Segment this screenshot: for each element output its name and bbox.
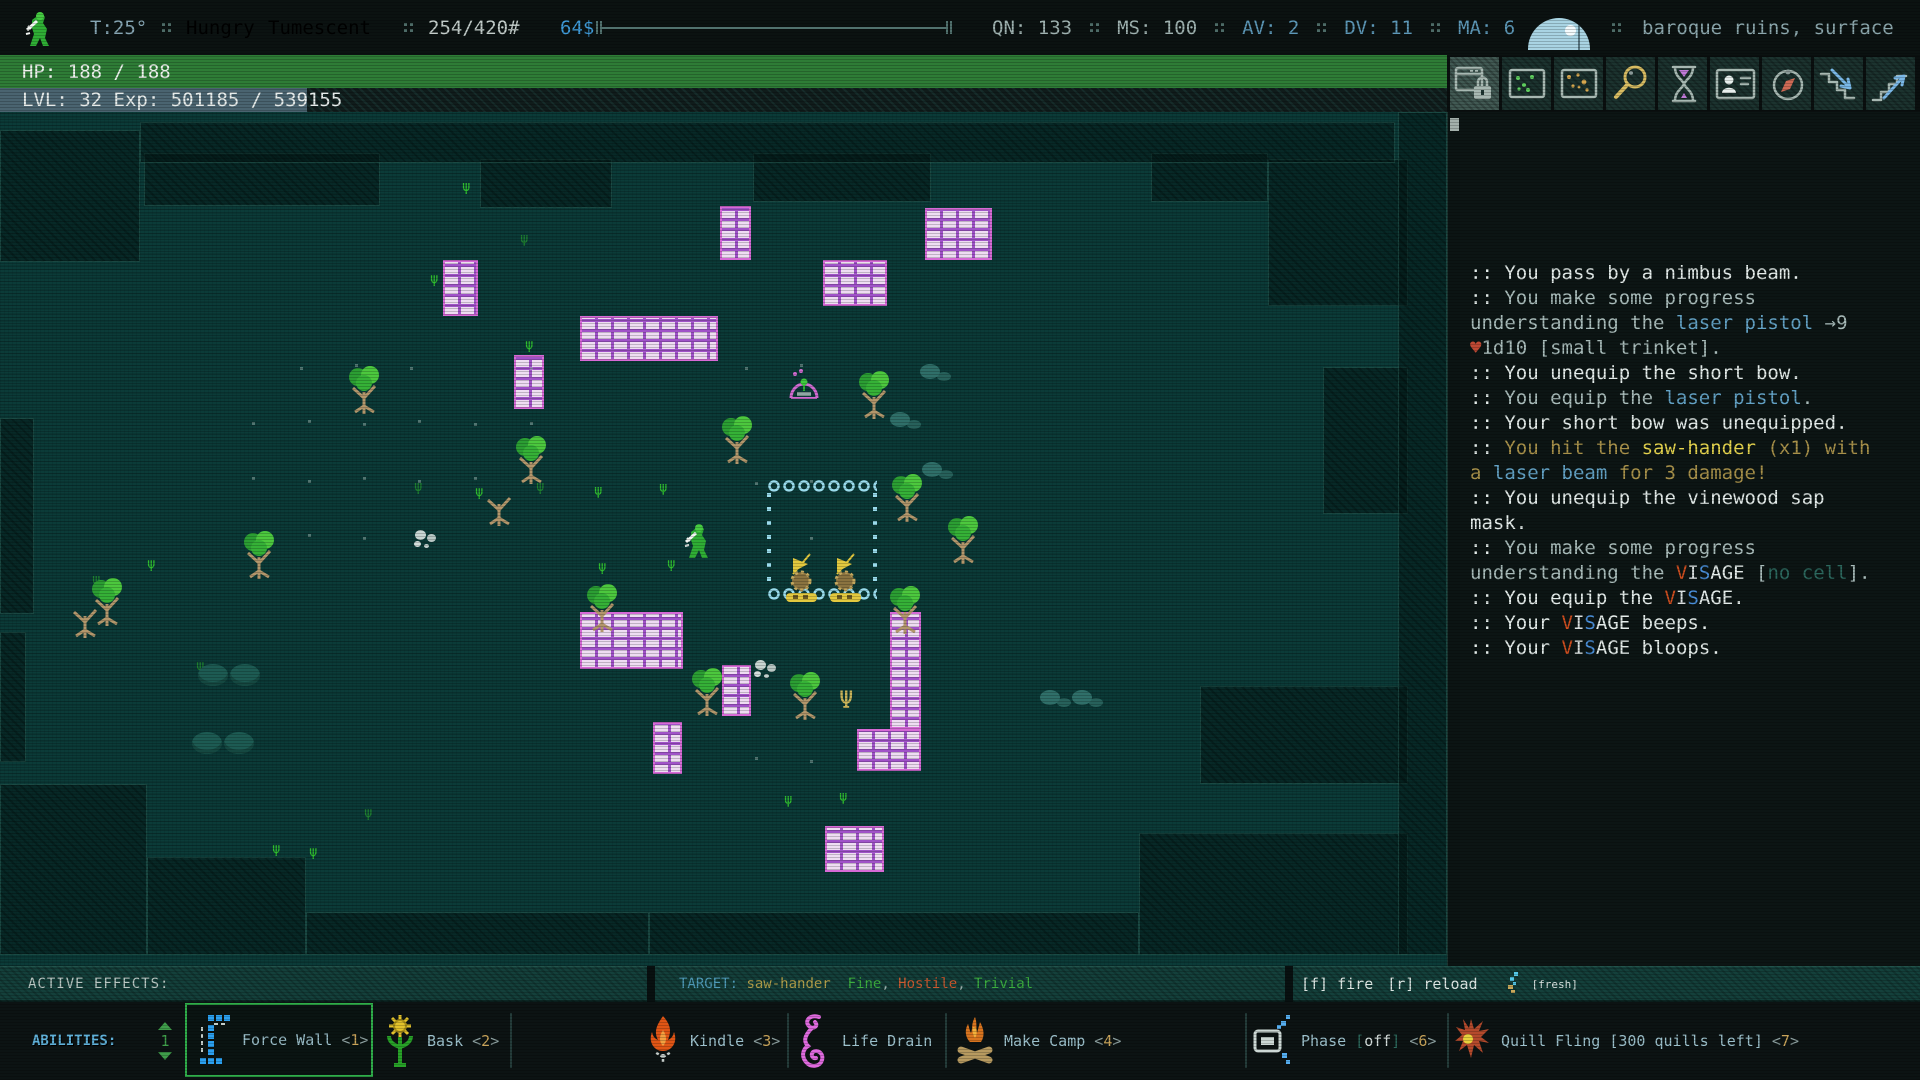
tree: [583, 580, 621, 634]
smoke-puff: [415, 530, 426, 540]
grass-tuft: ψ: [525, 338, 533, 352]
log-line: :: You unequip the vinewood sap: [1470, 486, 1914, 511]
scrollbar-thumb[interactable]: [1450, 118, 1459, 131]
top-status-bar: T:25° Hungry Tumescent 254/420# 64$ QN: …: [0, 0, 1920, 55]
phase-icon: [1252, 1013, 1292, 1069]
ability-separator: [1245, 1013, 1247, 1068]
log-line: :: You make some progress: [1470, 286, 1914, 311]
force-wall-icon: [197, 1013, 233, 1067]
ruin-room: [1139, 833, 1408, 955]
marble-wall: [514, 355, 544, 409]
fire-hint: [f] fire: [1301, 975, 1373, 993]
ability-label: Quill Fling: [1501, 1032, 1600, 1050]
log-scrollbar: [1447, 112, 1460, 966]
life-drain-icon: [797, 1013, 833, 1069]
ability-separator: [510, 1013, 512, 1068]
ability-state: [off]: [1355, 1032, 1400, 1050]
separator-dots: [1215, 23, 1224, 32]
log-line: :: You hit the saw-hander (x1) with: [1470, 436, 1914, 461]
abilities-pager: 1: [158, 1002, 172, 1080]
weight-bar: [596, 21, 952, 34]
target-segment: ,: [957, 976, 974, 992]
boulder: [192, 732, 222, 754]
target-segment: TARGET:: [679, 976, 746, 992]
marble-wall: [925, 208, 992, 260]
log-line: :: Your VISAGE beeps.: [1470, 611, 1914, 636]
quill-fling-icon: [1452, 1013, 1492, 1069]
ruin-room: [0, 418, 34, 614]
boulder: [230, 664, 260, 686]
stairs-down-button[interactable]: [1814, 57, 1863, 110]
ability-separator: [1447, 1013, 1449, 1068]
saw-hander-creature[interactable]: [783, 552, 829, 606]
ruin-room: [0, 632, 26, 762]
tree: [688, 664, 726, 718]
marble-wall: [823, 260, 887, 306]
nimbus-creature[interactable]: [786, 368, 822, 412]
grass-tuft: ψ: [594, 484, 602, 498]
log-line: :: You pass by a nimbus beam.: [1470, 261, 1914, 286]
target-segment: saw-hander: [746, 976, 839, 992]
world-map-button[interactable]: [1554, 57, 1603, 110]
grass-tuft: ψ: [598, 560, 606, 574]
log-line: :: You unequip the short bow.: [1470, 361, 1914, 386]
ability-make-camp[interactable]: Make Camp<4>: [955, 1002, 1121, 1080]
separator-dots: [1431, 23, 1440, 32]
ability-hotkey: <7>: [1772, 1032, 1799, 1050]
local-map-button[interactable]: [1502, 57, 1551, 110]
log-line: understanding the laser pistol →9: [1470, 311, 1914, 336]
stat-qn: QN: 133: [992, 17, 1072, 39]
gas-cloud: [1040, 690, 1060, 705]
ruin-room: [649, 912, 1139, 955]
message-log: :: You pass by a nimbus beam.:: You make…: [1460, 112, 1920, 966]
gas-cloud: [1072, 690, 1092, 705]
game-screen: T:25° Hungry Tumescent 254/420# 64$ QN: …: [0, 0, 1920, 1080]
boulder: [198, 664, 228, 686]
ability-hotkey: <2>: [472, 1032, 499, 1050]
day-night-indicator: [1528, 14, 1590, 54]
ruin-room: [1398, 112, 1447, 955]
tree: [888, 470, 926, 524]
level-bar: LVL: 32 Exp: 501185 / 539155: [0, 88, 1447, 112]
ability-label: Phase: [1301, 1032, 1346, 1050]
log-line: :: You equip the VISAGE.: [1470, 586, 1914, 611]
marble-wall: [443, 260, 478, 316]
rest-button[interactable]: [1658, 57, 1707, 110]
money: 64$: [560, 0, 594, 55]
grass-tuft: ψ: [784, 793, 792, 807]
ability-label: Life Drain: [842, 1032, 932, 1050]
separator-dots: [400, 0, 417, 55]
grass-tuft: ψ: [309, 845, 317, 859]
smoke-puff: [755, 660, 766, 670]
ability-extra: [300 quills left]: [1609, 1032, 1763, 1050]
dry-plant: Ψ: [839, 688, 853, 712]
saw-hander-creature[interactable]: [827, 552, 873, 606]
ability-bask[interactable]: Bask<2>: [382, 1002, 499, 1080]
zoom-view-button[interactable]: [1606, 57, 1655, 110]
marble-wall: [825, 826, 884, 872]
stats-group: QN: 133MS: 100AV: 2DV: 11MA: 6: [992, 0, 1515, 55]
ability-force-wall[interactable]: Force Wall<1>: [185, 1003, 373, 1077]
log-line: ♥1d10 [small trinket].: [1470, 336, 1914, 361]
ruin-room: [1323, 367, 1408, 514]
ruin-room: [0, 130, 140, 262]
pager-down-icon[interactable]: [158, 1052, 172, 1060]
stat-ma: MA: 6: [1458, 17, 1515, 39]
dry-tree: [66, 586, 104, 640]
stat-av: AV: 2: [1242, 17, 1299, 39]
ruin-room: [0, 784, 147, 955]
tree: [345, 362, 383, 416]
ability-separator: [787, 1013, 789, 1068]
log-line: :: You equip the laser pistol.: [1470, 386, 1914, 411]
ability-kindle[interactable]: Kindle<3>: [645, 1002, 780, 1080]
boulder: [224, 732, 254, 754]
tree: [718, 412, 756, 466]
marble-wall: [653, 722, 682, 774]
ability-hotkey: <6>: [1409, 1032, 1436, 1050]
grass-tuft: ψ: [462, 180, 470, 194]
toolbar: [1447, 55, 1920, 112]
temperature: T:25°: [90, 0, 147, 55]
target-segment: Hostile: [898, 976, 957, 992]
log-line: :: You make some progress: [1470, 536, 1914, 561]
target-segment: ,: [881, 976, 898, 992]
active-effects-label: ACTIVE EFFECTS:: [28, 976, 169, 992]
lock-interface-button[interactable]: [1450, 57, 1499, 110]
tree: [786, 668, 824, 722]
log-line: mask.: [1470, 511, 1914, 536]
grass-tuft: ψ: [520, 232, 528, 246]
ability-hotkey: <4>: [1094, 1032, 1121, 1050]
hp-value: HP: 188 / 188: [22, 61, 171, 83]
character-sheet-button[interactable]: [1710, 57, 1759, 110]
tree: [855, 367, 893, 421]
grass-tuft: ψ: [147, 557, 155, 571]
grass-tuft: ψ: [430, 272, 438, 286]
ability-hotkey: <1>: [341, 1031, 368, 1049]
grass-tuft: ψ: [839, 790, 847, 804]
tree: [240, 527, 278, 581]
dry-tree: [480, 474, 518, 528]
grass-tuft: ψ: [659, 481, 667, 495]
ruin-room: [147, 857, 306, 955]
location-label: baroque ruins, surface: [1642, 0, 1894, 55]
gas-cloud: [890, 412, 910, 427]
energy-cell-icon: [1502, 969, 1522, 999]
ability-hotkey: <3>: [753, 1032, 780, 1050]
ruin-room: [140, 122, 1395, 163]
log-line: :: Your short bow was unequipped.: [1470, 411, 1914, 436]
hp-bar: HP: 188 / 188: [0, 55, 1447, 88]
kindle-icon: [645, 1013, 681, 1069]
carry-weight: 254/420#: [428, 0, 520, 55]
active-effects-bar: ACTIVE EFFECTS:: [0, 966, 647, 1002]
journal-button[interactable]: [1762, 57, 1811, 110]
log-line: :: Your VISAGE bloops.: [1470, 636, 1914, 661]
marble-wall: [857, 729, 921, 771]
grass-tuft: ψ: [414, 480, 422, 494]
log-line: understanding the VISAGE [no cell].: [1470, 561, 1914, 586]
target-segment: Fine: [839, 976, 881, 992]
player-icon: [24, 0, 54, 55]
ability-quill-fling[interactable]: Quill Fling[300 quills left]<7>: [1452, 1002, 1799, 1080]
status-hungry: Hungry: [186, 0, 255, 55]
ruin-room: [1268, 159, 1408, 306]
level-exp-text: LVL: 32 Exp: 501185 / 539155: [22, 89, 342, 111]
grass-tuft: ψ: [364, 806, 372, 820]
pager-up-icon[interactable]: [158, 1022, 172, 1030]
stat-dv: DV: 11: [1344, 17, 1413, 39]
tree: [886, 582, 924, 636]
separator-dots: [1608, 0, 1625, 55]
marble-wall: [722, 665, 751, 716]
status-tumescent: Tumescent: [268, 0, 371, 55]
log-line: a laser beam for 3 damage!: [1470, 461, 1914, 486]
pager-page: 1: [160, 1032, 169, 1050]
marble-wall: [720, 206, 751, 260]
gas-cloud: [920, 364, 940, 379]
stairs-up-button[interactable]: [1866, 57, 1915, 110]
stat-ms: MS: 100: [1117, 17, 1197, 39]
bask-icon: [382, 1013, 418, 1069]
grass-tuft: ψ: [272, 842, 280, 856]
ruin-room: [480, 159, 612, 208]
make-camp-icon: [955, 1013, 995, 1069]
abilities-label: ABILITIES:: [32, 1002, 116, 1080]
grass-tuft: ψ: [667, 557, 675, 571]
target-bar: TARGET: saw-hander Fine, Hostile, Trivia…: [655, 966, 1285, 1002]
abilities-bar: ABILITIES: 1 Force Wall<1>Bask<2>Kindle<…: [0, 1002, 1920, 1080]
ruin-room: [306, 912, 649, 955]
game-map[interactable]: ψψψψψψψψψψψψψψψψψψψψΨ: [0, 112, 1447, 966]
ability-label: Force Wall: [242, 1031, 332, 1049]
separator-dots: [1317, 23, 1326, 32]
tree: [944, 512, 982, 566]
separator-dots: [158, 0, 175, 55]
ability-separator: [945, 1013, 947, 1068]
ability-label: Kindle: [690, 1032, 744, 1050]
ability-life-drain[interactable]: Life Drain: [797, 1002, 932, 1080]
cell-status: [fresh]: [1532, 978, 1578, 991]
separator-dots: [1090, 23, 1099, 32]
gas-cloud: [922, 462, 942, 477]
ability-phase[interactable]: Phase[off]<6>: [1252, 1002, 1436, 1080]
reload-hint: [r] reload: [1387, 975, 1477, 993]
fire-bar: [f] fire [r] reload [fresh]: [1293, 966, 1920, 1002]
player-character[interactable]: [683, 520, 713, 564]
ability-label: Bask: [427, 1032, 463, 1050]
ability-label: Make Camp: [1004, 1032, 1085, 1050]
marble-wall: [580, 316, 718, 361]
ruin-room: [1200, 686, 1408, 784]
target-segment: Trivial: [974, 976, 1033, 992]
